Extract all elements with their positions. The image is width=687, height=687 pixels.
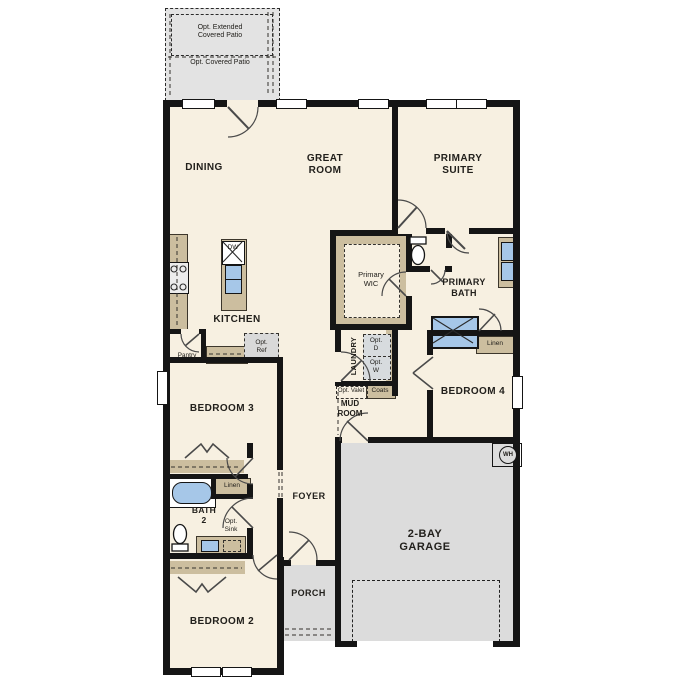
window bbox=[157, 371, 168, 405]
window bbox=[191, 667, 221, 677]
window bbox=[358, 99, 389, 109]
island-sink-basin2 bbox=[225, 279, 242, 294]
porch-floor bbox=[284, 565, 335, 641]
bedroom3-closet-shelf bbox=[169, 460, 244, 473]
window bbox=[182, 99, 215, 109]
wall bbox=[335, 381, 392, 386]
pantry-label: Pantry bbox=[167, 352, 207, 360]
wall bbox=[166, 474, 248, 479]
door-opening bbox=[181, 329, 199, 334]
room-label-primary-wic: Primary WIC bbox=[341, 270, 401, 288]
door-opening bbox=[445, 228, 469, 234]
room-label-bedroom-4: BEDROOM 4 bbox=[423, 386, 523, 398]
window bbox=[276, 99, 307, 109]
patio-extended-label: Opt. Extended Covered Patio bbox=[175, 24, 265, 41]
wall bbox=[330, 230, 336, 330]
room-label-garage: 2-BAY GARAGE bbox=[375, 528, 475, 554]
room-label-mud-room: MUD ROOM bbox=[325, 399, 375, 418]
room-label-primary-suite: PRIMARY SUITE bbox=[418, 153, 498, 177]
door-opening bbox=[227, 100, 258, 107]
door-opening bbox=[398, 228, 426, 234]
wall bbox=[163, 329, 181, 334]
room-label-bedroom-2: BEDROOM 2 bbox=[172, 616, 272, 628]
door-opening bbox=[427, 355, 433, 390]
wall bbox=[427, 330, 520, 336]
bedroom3-linen-label: Linen bbox=[215, 482, 249, 490]
door-opening bbox=[430, 266, 445, 272]
opt-ref-label: Opt. Ref bbox=[245, 339, 278, 355]
wall bbox=[163, 553, 253, 559]
room-label-porch: PORCH bbox=[281, 588, 336, 599]
wall bbox=[406, 296, 412, 324]
wall bbox=[513, 437, 520, 647]
room-label-kitchen: KITCHEN bbox=[197, 314, 277, 326]
opt-dryer-label: Opt. D bbox=[363, 337, 389, 353]
wall bbox=[330, 324, 412, 330]
wall bbox=[283, 560, 291, 566]
hall-linen-label: Linen bbox=[476, 340, 514, 348]
bath2-tub bbox=[172, 482, 212, 504]
window bbox=[456, 99, 487, 109]
stove bbox=[169, 262, 189, 294]
wall bbox=[392, 324, 398, 396]
wall bbox=[335, 641, 357, 647]
coats-label: Coats bbox=[366, 387, 394, 395]
opt-washer-label: Opt. W bbox=[363, 359, 389, 375]
wall bbox=[247, 443, 253, 458]
wall bbox=[277, 557, 284, 675]
door-opening bbox=[406, 272, 412, 296]
bath2-sink bbox=[201, 540, 219, 552]
bedroom2-closet-shelf bbox=[169, 561, 245, 574]
garage-door-outline bbox=[352, 580, 500, 642]
opt-valet-label: Opt. Valet bbox=[336, 388, 366, 395]
window bbox=[426, 99, 457, 109]
wall bbox=[277, 498, 283, 560]
wall bbox=[493, 641, 520, 647]
bath2-opt-sink bbox=[223, 540, 241, 552]
room-label-primary-bath: PRIMARY BATH bbox=[424, 277, 504, 299]
water-heater-icon: WH bbox=[499, 446, 517, 464]
foyer-floor bbox=[280, 443, 337, 565]
island-sink-basin1 bbox=[225, 265, 242, 280]
room-label-great-room: GREAT ROOM bbox=[285, 153, 365, 177]
door-opening bbox=[335, 352, 341, 382]
room-label-bedroom-3: BEDROOM 3 bbox=[172, 403, 272, 415]
patio-covered-label: Opt. Covered Patio bbox=[170, 59, 270, 67]
wall bbox=[316, 560, 335, 566]
window bbox=[222, 667, 252, 677]
floor-plan: WH Opt. Extended Covered Patio Opt. Cove… bbox=[0, 0, 687, 687]
opt-sink-label: Opt. Sink bbox=[213, 518, 249, 534]
wall bbox=[406, 266, 452, 272]
wall bbox=[392, 100, 398, 234]
dishwasher-label: DW bbox=[222, 244, 244, 252]
room-label-foyer: FOYER bbox=[279, 491, 339, 502]
room-label-laundry: LAUNDRY bbox=[349, 326, 363, 386]
door-opening bbox=[342, 437, 368, 443]
wall bbox=[335, 437, 341, 647]
room-label-dining: DINING bbox=[164, 162, 244, 174]
wall bbox=[277, 357, 283, 470]
wall bbox=[211, 494, 253, 499]
